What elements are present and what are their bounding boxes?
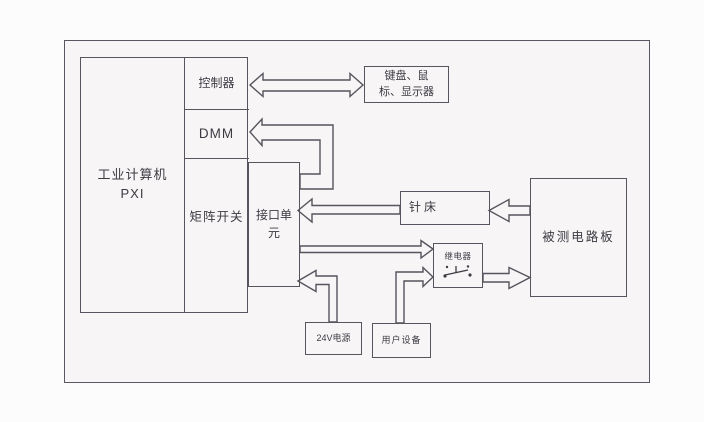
node-user-equipment: 用户设备 [372, 323, 431, 358]
24v-power-label: 24V电源 [316, 332, 350, 345]
node-dut-board: 被测电路板 [530, 178, 627, 297]
node-needle-bed: 针床 [400, 191, 490, 225]
node-24v-power: 24V电源 [305, 322, 362, 355]
interface-unit-label: 接口单 元 [256, 207, 292, 242]
node-relay: 继电器 [433, 243, 483, 288]
node-dmm: DMM [184, 109, 249, 158]
node-controller: 控制器 [184, 58, 249, 109]
industrial-computer-label: 工业计算机 PXI [97, 166, 167, 204]
matrix-switch-label: 矩阵开关 [189, 208, 243, 226]
relay-contact-icon [441, 263, 475, 279]
node-industrial-computer: 工业计算机 PXI 控制器 DMM 矩阵开关 [80, 57, 248, 313]
node-interface-unit: 接口单 元 [248, 162, 300, 287]
node-keyboard-mouse-display: 键盘、鼠 标、显示器 [364, 66, 449, 103]
keyboard-mouse-display-label: 键盘、鼠 标、显示器 [379, 69, 434, 101]
dut-board-label: 被测电路板 [542, 228, 615, 246]
node-matrix-switch: 矩阵开关 [184, 158, 249, 314]
needle-bed-label: 针床 [409, 199, 439, 216]
dmm-label: DMM [199, 124, 234, 144]
controller-label: 控制器 [198, 75, 234, 92]
diagram-canvas: 工业计算机 PXI 控制器 DMM 矩阵开关 接口单 元 键盘、鼠 标、显示器 … [0, 0, 704, 422]
relay-label: 继电器 [444, 250, 471, 262]
user-equipment-label: 用户设备 [381, 334, 421, 347]
